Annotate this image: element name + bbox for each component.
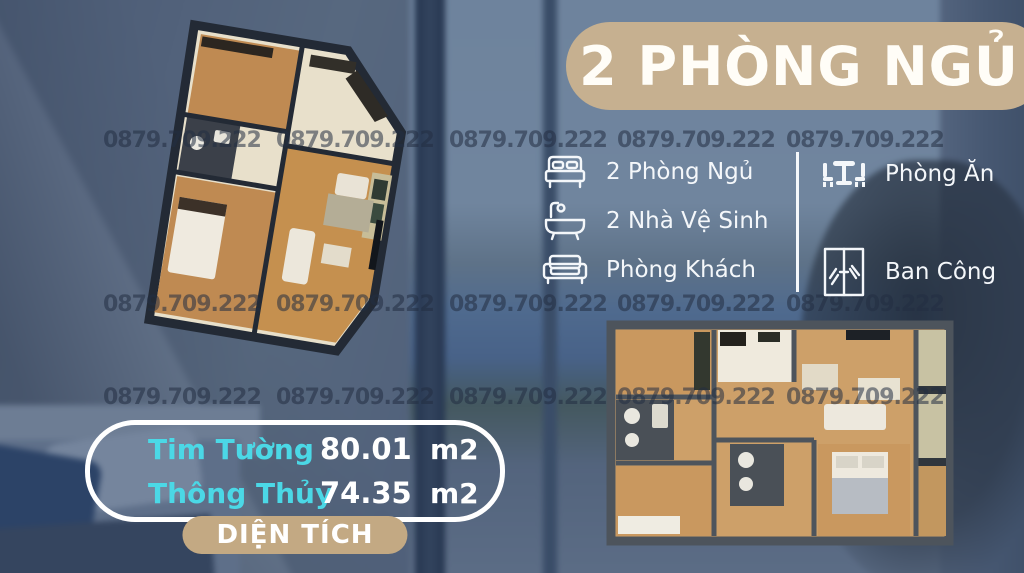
feature-bedrooms: 2 Phòng Ngủ — [538, 148, 796, 196]
promo-image: 2 PHÒNG NGỦ 2 Phòng Ngủ — [0, 0, 1024, 573]
watermark-text: 0879.709.222 — [103, 385, 261, 410]
watermark-text: 0879.709.222 — [276, 128, 434, 153]
feature-label: 2 Nhà Vệ Sinh — [606, 208, 768, 234]
area-unit: m2 — [430, 472, 479, 516]
balcony-window-icon — [817, 246, 871, 298]
apartment-features: 2 Phòng Ngủ 2 Nhà Vệ Sinh — [538, 148, 1024, 298]
feature-label: Phòng Ăn — [885, 161, 994, 187]
bed-icon — [538, 152, 592, 192]
page-title: 2 PHÒNG NGỦ — [579, 35, 1024, 98]
floor-plan-bottom-right — [606, 320, 954, 552]
watermark-text: 0879.709.222 — [617, 385, 775, 410]
title-banner: 2 PHÒNG NGỦ — [566, 22, 1024, 110]
area-row-gross: Tim Tường 80.01 m2 — [148, 427, 500, 471]
sofa-icon — [538, 251, 592, 289]
dining-table-icon — [817, 155, 871, 193]
area-badge: DIỆN TÍCH — [182, 516, 407, 554]
watermark-text: 0879.709.222 — [786, 385, 944, 410]
area-value: 74.35 — [320, 471, 408, 515]
feature-dining-room: Phòng Ăn — [817, 150, 996, 198]
watermark-text: 0879.709.222 — [276, 292, 434, 317]
feature-living-room: Phòng Khách — [538, 246, 796, 294]
watermark-text: 0879.709.222 — [276, 385, 434, 410]
features-divider — [796, 152, 799, 292]
area-value: 80.01 — [320, 427, 408, 471]
area-unit: m2 — [430, 428, 479, 472]
feature-balcony: Ban Công — [817, 248, 996, 296]
watermark-text: 0879.709.222 — [449, 385, 607, 410]
feature-label: Phòng Khách — [606, 257, 756, 283]
watermark-text: 0879.709.222 — [103, 128, 261, 153]
area-box: Tim Tường 80.01 m2 Thông Thủy 74.35 m2 — [85, 420, 505, 522]
feature-bathrooms: 2 Nhà Vệ Sinh — [538, 197, 796, 245]
watermark-text: 0879.709.222 — [103, 292, 261, 317]
area-row-net: Thông Thủy 74.35 m2 — [148, 471, 500, 515]
area-card: Tim Tường 80.01 m2 Thông Thủy 74.35 m2 D… — [85, 420, 505, 560]
feature-label: Ban Công — [885, 259, 996, 285]
area-label: Tim Tường — [148, 428, 320, 472]
floor-plan-top-left — [128, 18, 440, 370]
area-label: Thông Thủy — [148, 472, 320, 516]
bathtub-icon — [538, 199, 592, 243]
feature-label: 2 Phòng Ngủ — [606, 159, 753, 185]
